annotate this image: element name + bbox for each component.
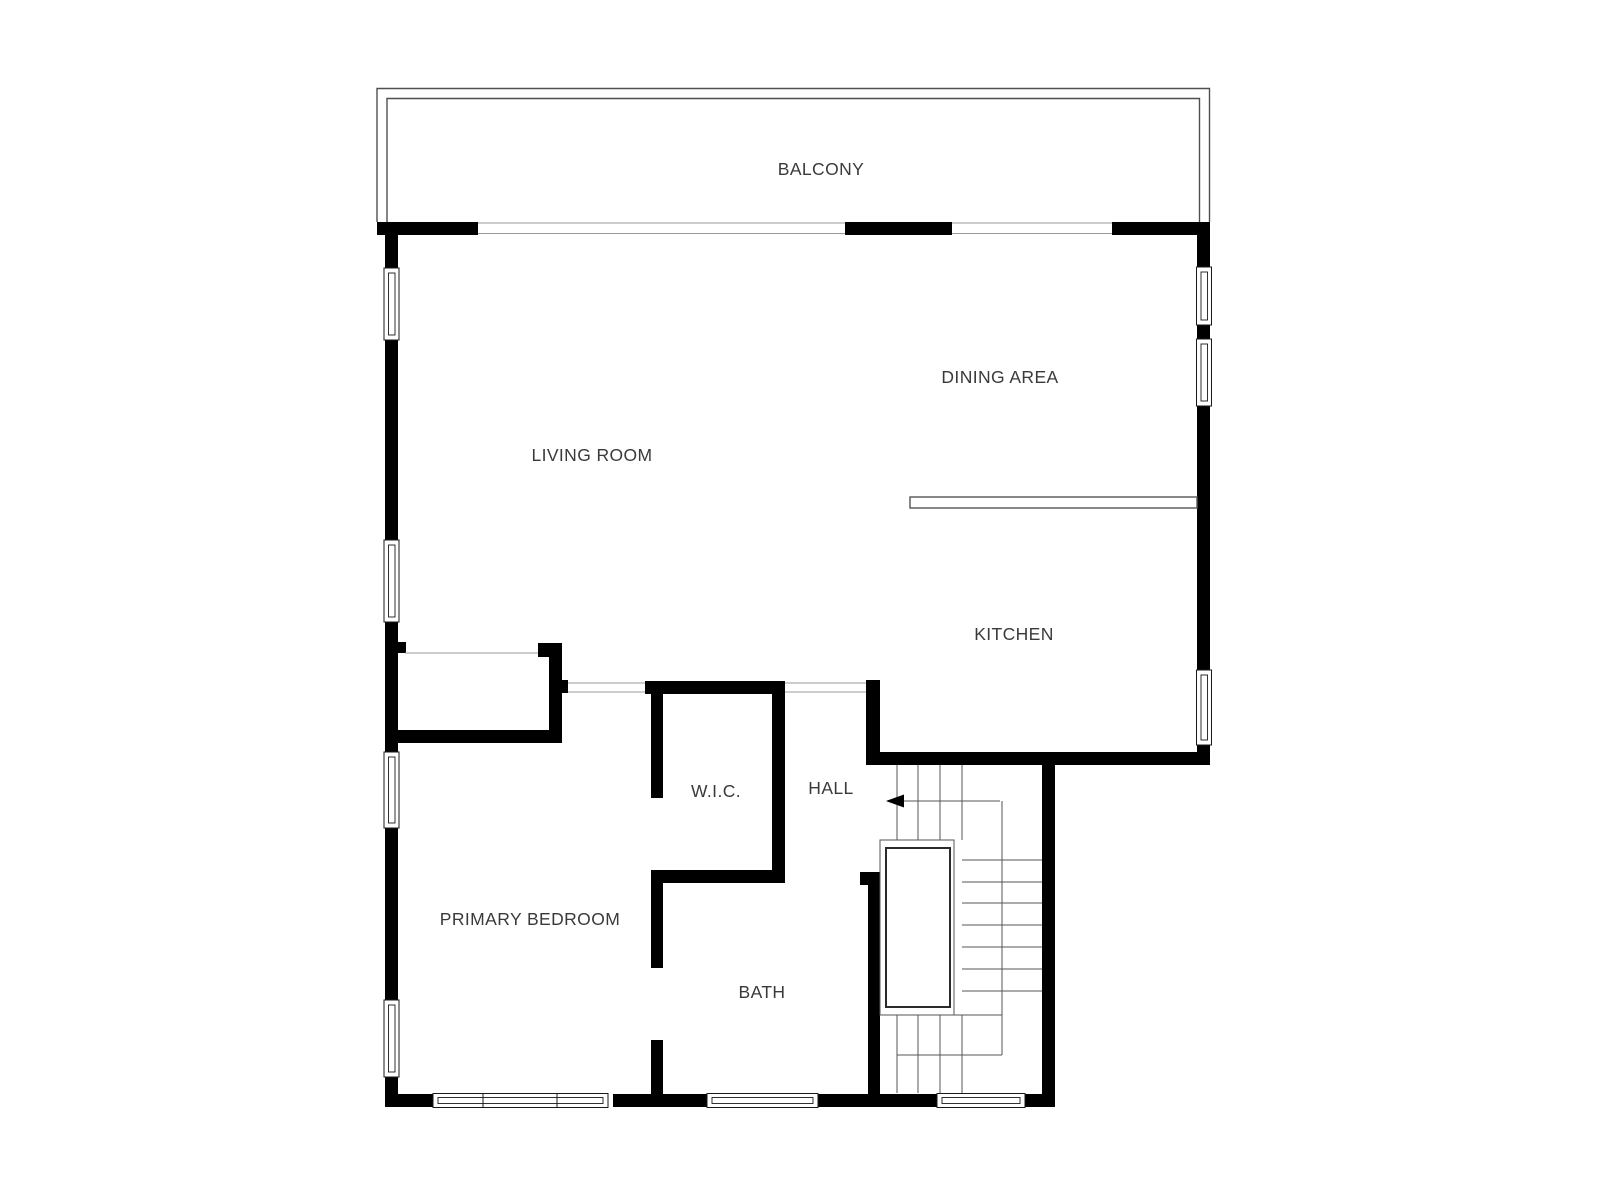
wall-closet-south (393, 730, 562, 743)
room-label-kitchen: KITCHEN (974, 624, 1054, 644)
wall-closet-corner (538, 643, 562, 657)
wall-closet-east (549, 657, 562, 735)
window-right-lower (1197, 670, 1212, 745)
window-left-1 (384, 268, 399, 340)
wall-left-1 (385, 222, 398, 268)
window-bath-south (707, 1094, 818, 1108)
window-pane (1201, 344, 1208, 401)
wall-kitchen-south (866, 752, 1210, 765)
window-left-4 (384, 1000, 399, 1077)
window-stair-south (937, 1094, 1025, 1108)
wall-wic-east (772, 694, 785, 883)
wall-right-1 (1197, 222, 1210, 267)
interior-walls (393, 642, 1210, 1107)
wall-bath-west-lower (651, 1040, 663, 1094)
wall-left-4 (385, 828, 398, 1000)
window-left-2 (384, 540, 399, 622)
stairs (880, 765, 1042, 1093)
stair-direction-arrow (886, 795, 1000, 808)
wall-left-2 (385, 340, 398, 540)
window-pane (1201, 675, 1208, 740)
wall-stair-west (868, 872, 880, 1107)
stair-arrow-head (886, 795, 904, 808)
room-label-wic: W.I.C. (691, 781, 741, 801)
floor-plan-page: BALCONY DINING AREA LIVING ROOM KITCHEN … (0, 0, 1600, 1200)
window-pane (942, 1098, 1020, 1104)
window-pane (712, 1098, 813, 1104)
wall-bottom-1 (385, 1094, 433, 1107)
window-left-3 (384, 752, 399, 828)
kitchen-counter (910, 497, 1197, 508)
balcony-outer-line (377, 89, 1210, 223)
wall-closet-west-nub (398, 642, 406, 653)
room-label-hall: HALL (808, 778, 853, 798)
wall-right-mullion (1197, 325, 1210, 339)
wall-stair-west-nub (860, 872, 880, 885)
opening-lines (405, 223, 1112, 692)
floor-plan-drawing: BALCONY DINING AREA LIVING ROOM KITCHEN … (0, 0, 1600, 1200)
wall-hall-east-upper (866, 680, 880, 765)
wall-bottom-2 (613, 1094, 707, 1107)
balcony-outline (377, 89, 1210, 223)
window-pane (438, 1098, 603, 1104)
room-label-balcony: BALCONY (778, 159, 864, 179)
exterior-walls (377, 222, 1210, 1107)
room-label-primary-bedroom: PRIMARY BEDROOM (440, 909, 620, 929)
room-label-dining-area: DINING AREA (941, 367, 1058, 387)
windows (384, 267, 1212, 1108)
wall-right-2 (1197, 406, 1210, 670)
wall-top-2 (845, 222, 952, 235)
wall-stair-east (1042, 765, 1055, 1107)
window-pane (389, 273, 396, 335)
window-pane (389, 757, 396, 823)
window-pane (389, 1005, 396, 1072)
window-pane (389, 545, 396, 617)
wall-wic-south (651, 870, 785, 883)
wall-wic-west (651, 694, 663, 798)
wall-wic-north (645, 681, 785, 694)
room-label-living-room: LIVING ROOM (531, 445, 652, 465)
wall-bath-west-upper (651, 883, 663, 968)
wall-top-3 (1112, 222, 1210, 235)
room-label-bath: BATH (739, 982, 786, 1002)
stair-shaft-inner (886, 848, 950, 1007)
window-bedroom-south (433, 1094, 608, 1108)
wall-corridor-nub (562, 680, 568, 693)
window-pane (1201, 272, 1208, 320)
